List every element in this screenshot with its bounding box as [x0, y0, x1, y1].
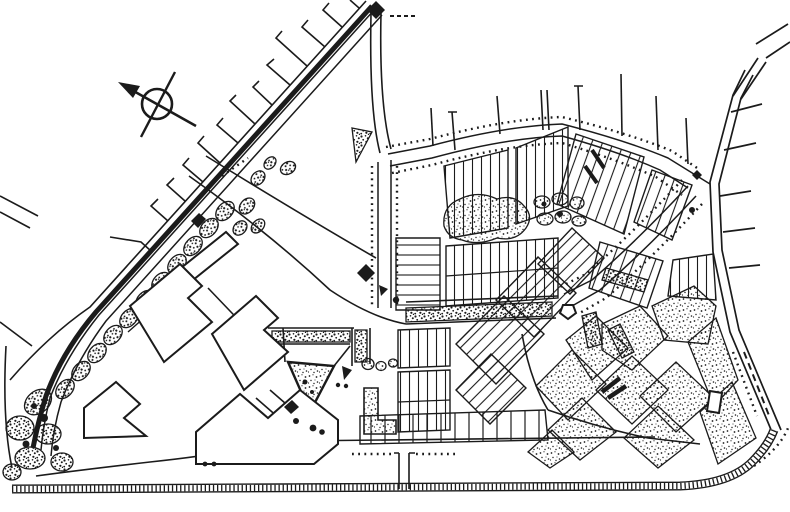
- hedge-strip: [272, 331, 350, 342]
- site-plan-page: [0, 0, 790, 512]
- hedge-strip: [355, 330, 367, 362]
- loop-park: [444, 195, 530, 243]
- site-plan-map: [0, 0, 790, 512]
- small-structure: [707, 391, 722, 413]
